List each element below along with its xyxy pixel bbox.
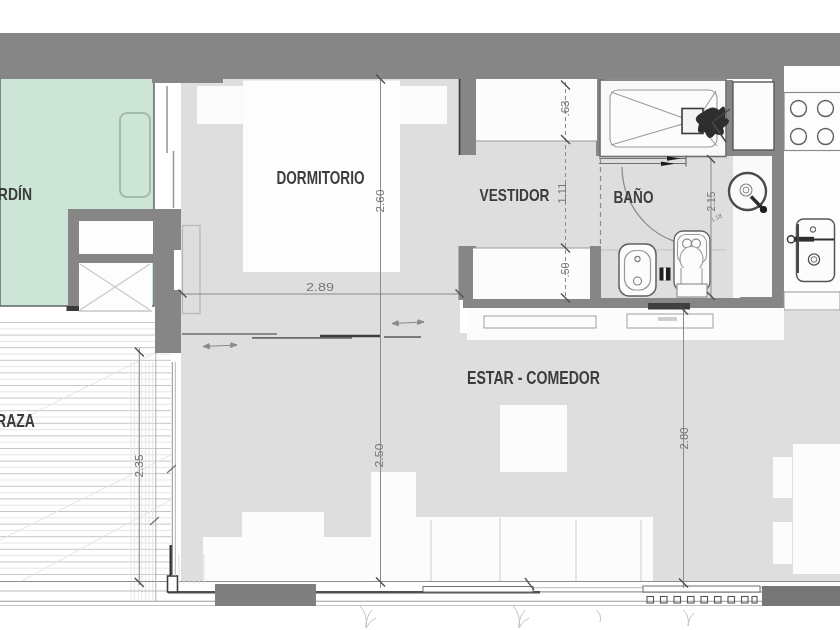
svg-text:JARDÍN: JARDÍN xyxy=(0,185,32,204)
svg-text:ESTAR - COMEDOR: ESTAR - COMEDOR xyxy=(467,368,600,388)
svg-text:2.80: 2.80 xyxy=(678,427,690,449)
svg-text:DORMITORIO: DORMITORIO xyxy=(277,168,365,188)
svg-text:TERRAZA: TERRAZA xyxy=(0,410,35,431)
svg-text:2.89: 2.89 xyxy=(306,281,334,293)
svg-text:.50: .50 xyxy=(560,262,571,277)
svg-text:2.60: 2.60 xyxy=(374,189,386,212)
svg-text:BAÑO: BAÑO xyxy=(614,187,654,206)
svg-text:2.50: 2.50 xyxy=(373,443,385,467)
svg-text:.63: .63 xyxy=(560,100,571,116)
svg-text:2.35: 2.35 xyxy=(133,454,145,477)
svg-text:2.15: 2.15 xyxy=(706,191,717,211)
svg-text:1.11: 1.11 xyxy=(557,182,568,203)
svg-text:VESTIDOR: VESTIDOR xyxy=(480,186,550,205)
